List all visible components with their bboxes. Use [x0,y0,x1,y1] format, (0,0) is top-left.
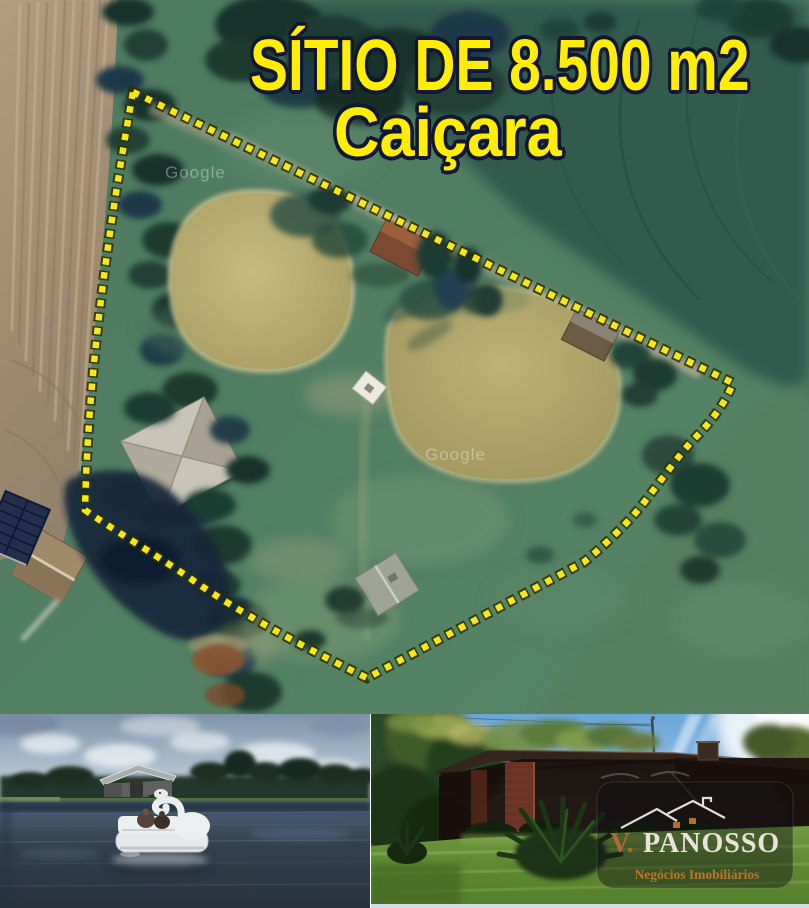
photo-house: V. PANOSSO Negócios Imobiliários [371,714,809,908]
logo-prefix: V. [610,828,634,859]
photo-swan-pond [0,714,370,908]
google-watermark: Google [425,445,486,464]
passenger [154,815,170,829]
agency-watermark: V. PANOSSO Negócios Imobiliários [597,782,793,888]
logo-name: PANOSSO [643,828,780,859]
chimney [698,742,718,760]
headline-line1: SÍTIO DE 8.500 m2 [250,30,750,102]
logo-tagline: Negócios Imobiliários [635,867,760,882]
headline-line2: Caiçara [334,97,562,167]
bottom-strip [371,904,809,908]
real-estate-ad: Google Google SÍTIO DE 8.500 m2 Caiçara [0,0,809,908]
grass-bank-light [0,797,60,802]
google-watermark: Google [165,163,226,182]
